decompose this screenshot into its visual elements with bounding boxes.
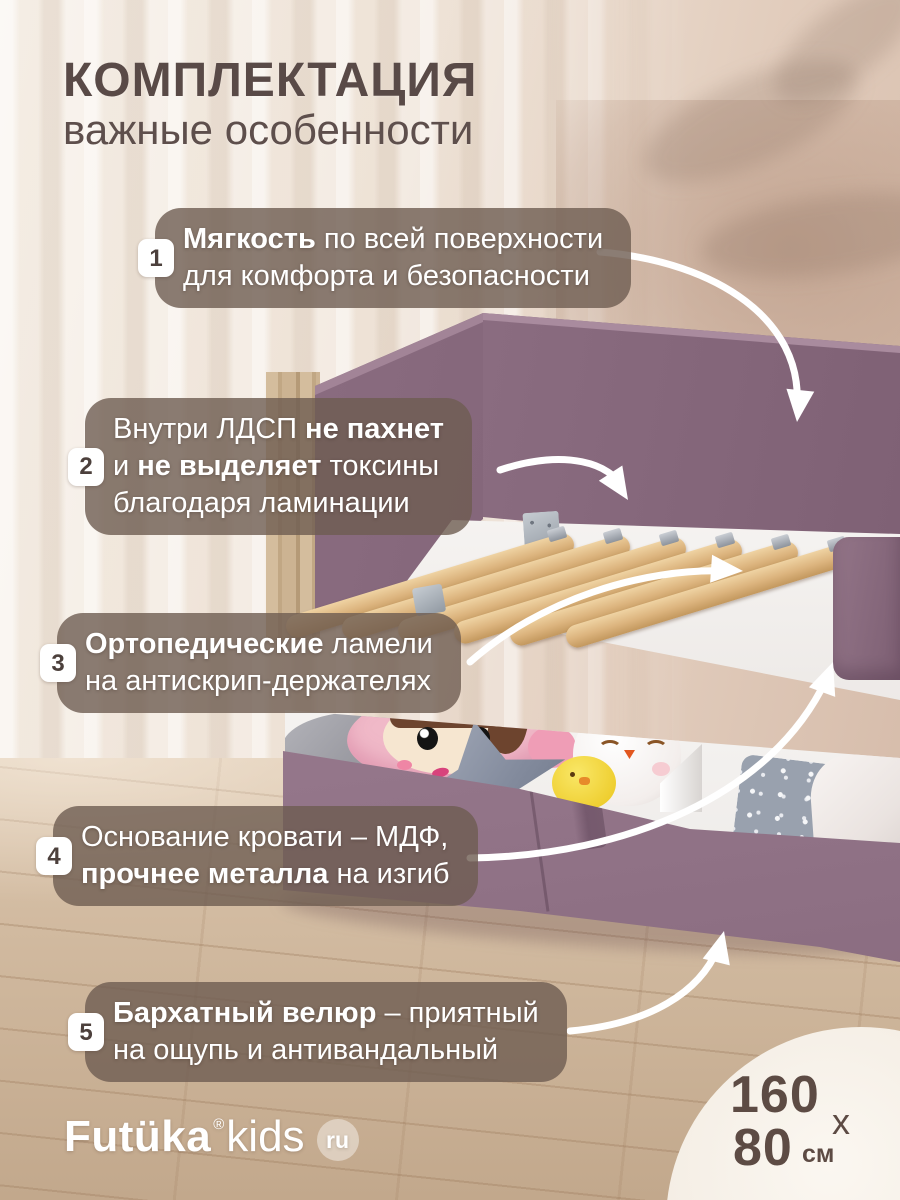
size-height-value: 80 xyxy=(733,1122,793,1174)
bunny-plush-cheek xyxy=(652,762,670,776)
chick-plush-beak xyxy=(579,777,590,785)
plush-doll-cheek xyxy=(397,760,412,770)
size-width-value: 160 xyxy=(730,1069,820,1121)
drawer-seam xyxy=(530,790,550,911)
product-infographic: 160 х 80 см КОМПЛЕКТАЦИЯ важные xyxy=(0,0,900,1200)
bunny-plush-eye xyxy=(598,740,622,758)
bunny-plush-eye xyxy=(644,740,668,758)
bed-side-bumper xyxy=(833,537,900,680)
wardrobe-strip xyxy=(266,372,320,640)
brand-ru-badge: ru xyxy=(317,1119,359,1161)
chick-plush-eye xyxy=(570,772,575,777)
plush-doll-eye xyxy=(417,727,438,750)
brand-name: Futüka xyxy=(64,1112,211,1162)
registered-mark-icon: ® xyxy=(213,1116,224,1133)
size-unit: см xyxy=(802,1140,834,1169)
brand-suffix: kids xyxy=(226,1112,304,1162)
brand-logo: Futüka ® kids ru xyxy=(64,1112,359,1162)
size-separator: х xyxy=(832,1101,850,1143)
